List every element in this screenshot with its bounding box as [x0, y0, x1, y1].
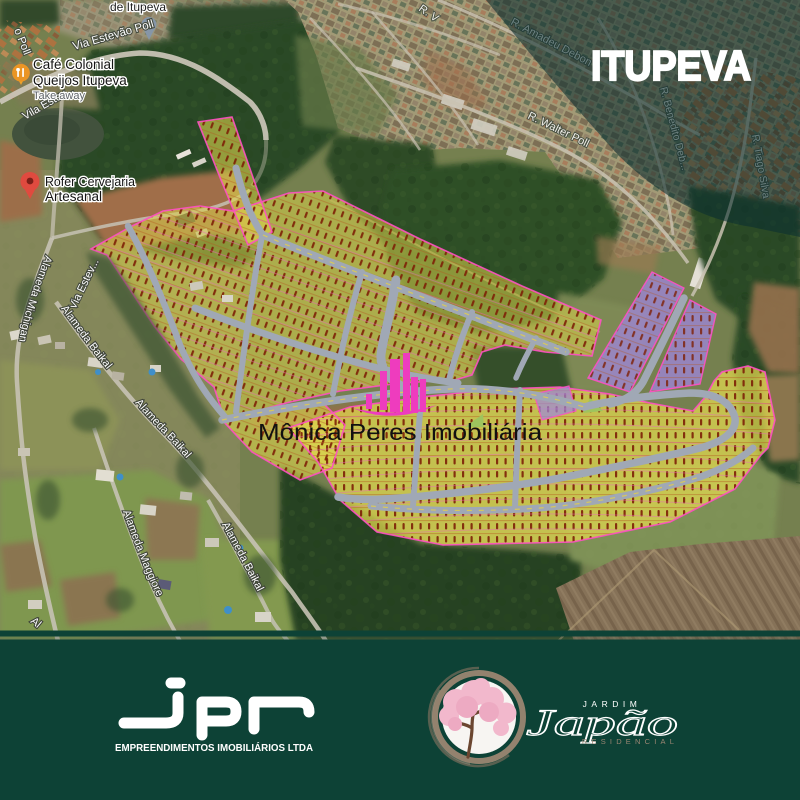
svg-text:ITUPEVA: ITUPEVA — [591, 42, 751, 89]
svg-text:Mônica Peres Imobiliária: Mônica Peres Imobiliária — [258, 419, 542, 445]
svg-text:Take away: Take away — [33, 90, 85, 102]
svg-text:de Itupeva: de Itupeva — [110, 0, 166, 14]
svg-text:Café Colonial: Café Colonial — [33, 57, 114, 72]
svg-text:Artesanal: Artesanal — [45, 189, 102, 204]
svg-text:Rofer Cervejaria: Rofer Cervejaria — [45, 174, 136, 189]
svg-text:EMPREENDIMENTOS IMOBILIÁRIOS L: EMPREENDIMENTOS IMOBILIÁRIOS LTDA — [115, 741, 313, 754]
svg-text:Queijos Itupeva: Queijos Itupeva — [33, 73, 127, 88]
svg-text:RESIDENCIAL: RESIDENCIAL — [582, 737, 678, 746]
